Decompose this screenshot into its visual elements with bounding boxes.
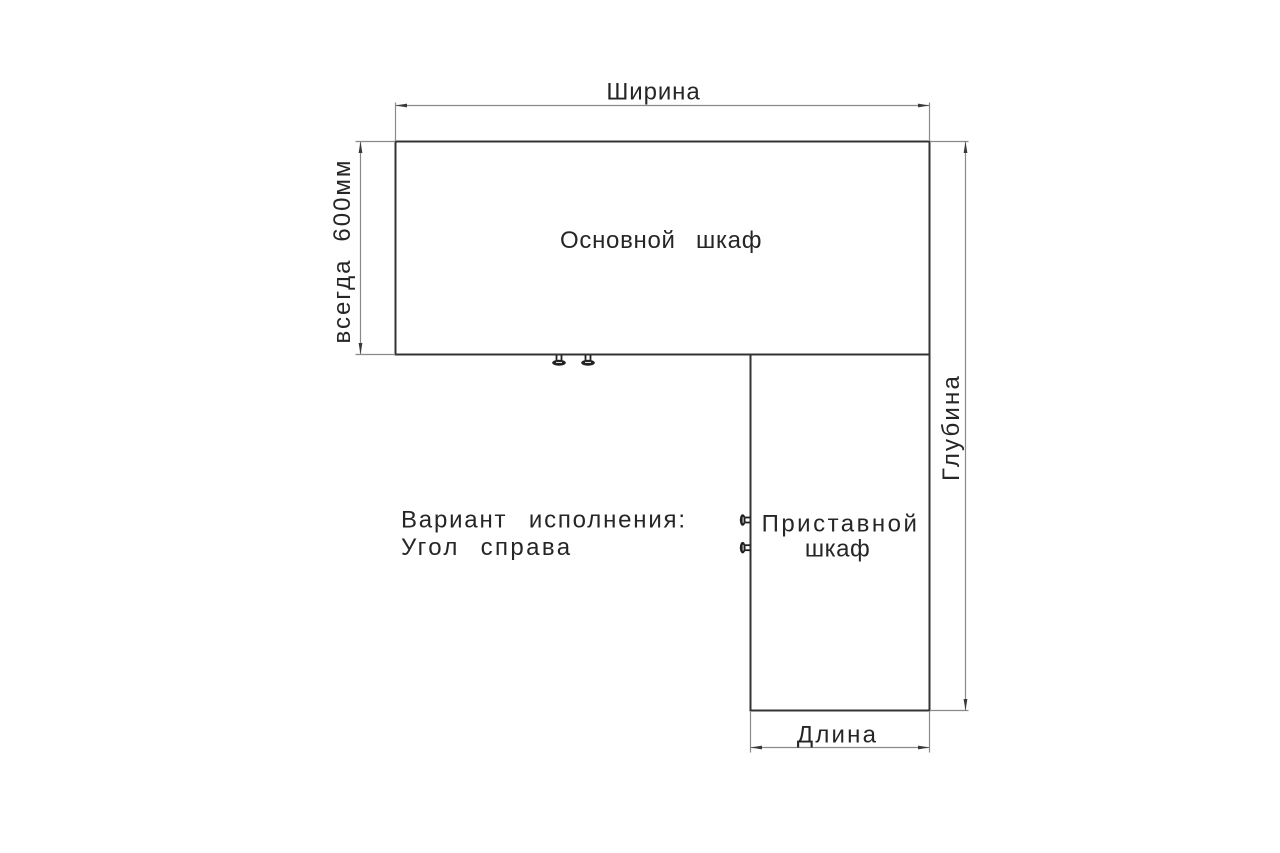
svg-text:Приставной: Приставной [762, 510, 920, 537]
svg-text:Угол справа: Угол справа [401, 534, 573, 561]
svg-text:Глубина: Глубина [938, 374, 965, 481]
svg-text:Ширина: Ширина [606, 79, 700, 106]
svg-text:Основной шкаф: Основной шкаф [560, 227, 762, 254]
svg-text:Вариант исполнения:: Вариант исполнения: [401, 506, 687, 533]
svg-text:Длина: Длина [797, 722, 878, 749]
svg-text:шкаф: шкаф [805, 536, 870, 563]
svg-text:всегда 600мм: всегда 600мм [329, 159, 356, 344]
